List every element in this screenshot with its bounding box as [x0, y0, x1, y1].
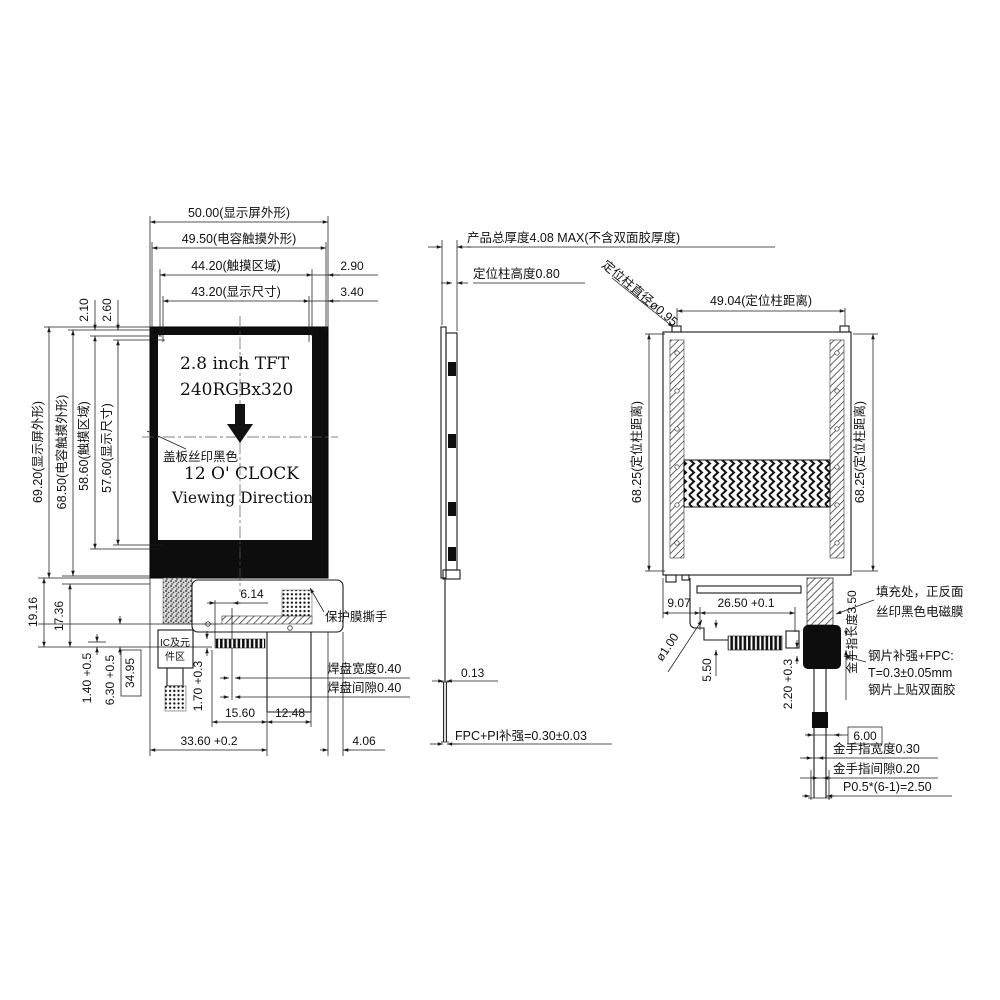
back-fpc-area: 9.07 26.50 +0.1 ø1.00 5.50 2.20 +0.3 金手指…: [653, 575, 964, 800]
steel-stiffener-block: [803, 625, 841, 669]
front-top-dimensions: 50.00(显示屏外形) 49.50(电容触摸外形) 44.20(触摸区域) 2…: [150, 206, 378, 342]
screen-line3: 12 O' CLOCK: [184, 464, 299, 484]
dim-1736: 17.36: [52, 601, 66, 631]
front-fpc-area: 保护膜撕手 焊盘宽度0.40 焊盘间隙0.40 6.14 19.16: [26, 578, 410, 756]
dim-013: 0.13: [461, 666, 485, 680]
film-hatch-strip: [222, 616, 312, 624]
ic-area-label-2: 件区: [165, 651, 185, 663]
finger-pitch-label: P0.5*(6-1)=2.50: [843, 780, 932, 794]
fill-note-2: 丝印黑色电磁膜: [876, 604, 964, 619]
dim-post-dia: 定位柱直径ø0.95: [599, 257, 681, 329]
dim-550: 5.50: [700, 658, 714, 682]
dim-1248: 12.48: [275, 706, 305, 720]
side-tape-1: [448, 362, 456, 376]
dim-1560: 15.60: [225, 706, 255, 720]
back-module-outline: [663, 332, 851, 575]
ic-area-label-1: IC及元: [160, 637, 190, 649]
positioning-post-holes: [675, 351, 839, 545]
steel-note-3: 钢片上贴双面胶: [868, 682, 956, 697]
fill-note-1: 填充处，正反面: [876, 584, 964, 599]
drawing-page: 2.8 inch TFT 240RGBx320 盖板丝印黑色 12 O' CLO…: [0, 0, 1000, 1000]
dim-3495: 34.95: [123, 658, 137, 688]
dim-outer-width: 50.00(显示屏外形): [188, 206, 290, 220]
steel-note-1: 钢片补强+FPC:: [868, 648, 954, 663]
back-tape-strip-left: [670, 340, 684, 558]
dim-touch-area-width: 44.20(触摸区域): [191, 259, 281, 273]
dim-220: 2.20 +0.3: [781, 658, 795, 709]
post-bump-left: [672, 326, 681, 332]
side-cover-glass: [441, 327, 446, 578]
back-post-distance-v-left: 68.25(定位柱距离): [629, 334, 665, 571]
dim-406: 4.06: [352, 734, 376, 748]
dim-offset-340: 3.40: [340, 285, 364, 299]
steel-note-2: T=0.3±0.05mm: [868, 666, 952, 680]
film-tear-handle: [282, 590, 312, 618]
back-post-diameter: 定位柱直径ø0.95: [599, 257, 681, 329]
pad-width-label: 焊盘宽度0.40: [327, 661, 401, 676]
dim-offset-290: 2.90: [340, 259, 364, 273]
dim-touch-area-height: 58.60(触摸区域): [77, 401, 91, 491]
fpc-tail-connector: [812, 712, 828, 728]
dim-3360: 33.60 +0.2: [180, 734, 237, 748]
dim-907: 9.07: [667, 596, 691, 610]
gold-fingers: [728, 636, 782, 650]
engineering-drawing: 2.8 inch TFT 240RGBx320 盖板丝印黑色 12 O' CLO…: [0, 0, 1000, 1000]
dim-display-area-width: 43.20(显示尺寸): [191, 285, 281, 299]
fpc-tail-contact: [165, 686, 186, 711]
dim-6825-right: 68.25(定位柱距离): [852, 401, 867, 503]
cover-note: 盖板丝印黑色: [163, 449, 239, 464]
side-tape-4: [448, 547, 456, 561]
back-view: 49.04(定位柱距离) 定位柱直径ø0.95 68.25(定位柱距离) 68.…: [599, 257, 963, 800]
side-fpc-thickness-dim: 0.13: [432, 666, 498, 681]
finger-width-label: 金手指宽度0.30: [833, 741, 920, 756]
side-fpc-note-dim: FPC+PI补强=0.30±0.03: [430, 728, 612, 744]
back-fpc-slot: [697, 586, 801, 593]
dim-600: 6.00: [853, 729, 877, 743]
finger-gap-label: 金手指间隙0.20: [833, 761, 920, 776]
dim-630: 6.30 +0.5: [103, 654, 117, 705]
side-post-height-dim: 定位柱高度0.80: [441, 266, 585, 283]
screen-line1: 2.8 inch TFT: [180, 354, 290, 374]
post-height-note: 定位柱高度0.80: [473, 266, 560, 281]
dim-offset-210: 2.10: [77, 298, 91, 322]
dim-touch-outer-height: 68.50(电容触摸外形): [54, 395, 69, 510]
back-post-distance-h: 49.04(定位柱距离): [677, 293, 845, 326]
screen-line4: Viewing Direction: [171, 489, 313, 507]
back-tape-strip-right: [830, 340, 844, 558]
pad-gap-label: 焊盘间隙0.40: [327, 680, 401, 695]
thickness-note: 产品总厚度4.08 MAX(不含双面胶厚度): [467, 230, 680, 245]
solder-pads: [215, 639, 265, 648]
dim-1916: 19.16: [26, 597, 40, 627]
fpc-tail-stem: [167, 668, 183, 686]
fpc-bend-strip: [163, 578, 192, 624]
dim-614: 6.14: [240, 587, 264, 601]
dim-display-area-height: 57.60(显示尺寸): [100, 403, 114, 493]
dim-hole-dia: ø1.00: [653, 630, 682, 664]
side-tape-3: [448, 502, 456, 516]
fill-hatch-block: [807, 578, 833, 625]
dim-offset-260: 2.60: [100, 298, 114, 322]
dim-6825-left: 68.25(定位柱距离): [629, 401, 644, 503]
dim-outer-height: 69.20(显示屏外形): [31, 401, 45, 503]
dim-4904: 49.04(定位柱距离): [710, 293, 812, 308]
front-left-dimensions: 69.20(显示屏外形) 68.50(电容触摸外形) 58.60(触摸区域) 5…: [31, 298, 165, 578]
dim-2650: 26.50 +0.1: [717, 596, 774, 610]
post-bump-right: [840, 326, 849, 332]
emi-film-band: [684, 460, 830, 507]
front-view: 2.8 inch TFT 240RGBx320 盖板丝印黑色 12 O' CLO…: [26, 206, 410, 756]
screen-line2: 240RGBx320: [180, 380, 293, 400]
dim-140: 1.40 +0.5: [80, 652, 94, 703]
film-tear-label: 保护膜撕手: [325, 610, 388, 624]
side-tape-2: [448, 434, 456, 448]
fpc-stiffener-note: FPC+PI补强=0.30±0.03: [455, 728, 587, 743]
dim-touch-outer-width: 49.50(电容触摸外形): [182, 231, 297, 246]
dim-finger-length: 金手指长度3.50: [844, 590, 859, 674]
back-post-distance-v-right: 68.25(定位柱距离): [852, 334, 878, 571]
